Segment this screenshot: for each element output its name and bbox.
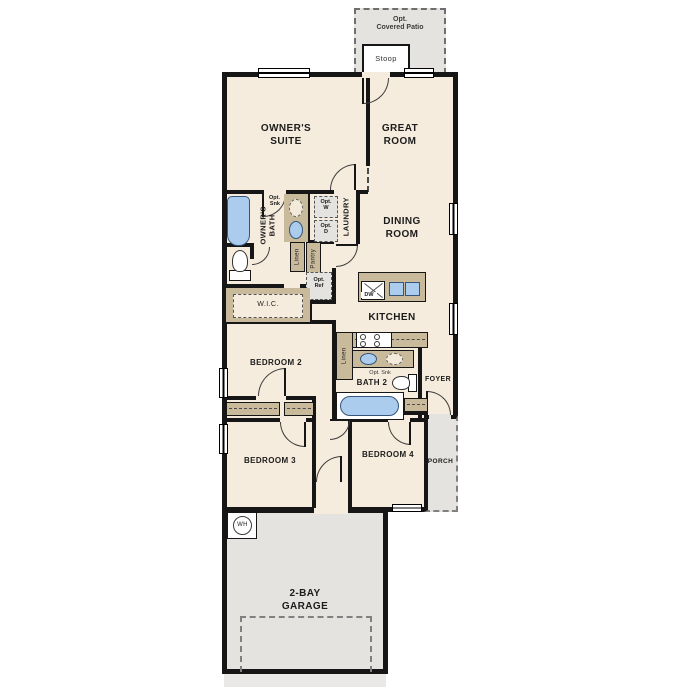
dining-room-label: DINING ROOM	[372, 216, 432, 241]
bedroom3-closet-left	[226, 402, 280, 416]
floor-plan: Opt. Covered Patio Stoop	[0, 0, 687, 687]
opt-w-line1: Opt.	[321, 199, 332, 205]
bedroom4-closet-dashes	[407, 404, 425, 405]
patio-label-line1: Opt.	[393, 16, 407, 23]
window-greatroom-north	[404, 68, 434, 78]
wic-label: W.I.C.	[238, 301, 298, 310]
opt-d-line1: Opt.	[321, 223, 332, 229]
bath2-sink	[360, 353, 377, 365]
closet-right-dashes	[287, 408, 311, 409]
garage-door-opt-outline	[240, 616, 372, 672]
bedroom2-label: BEDROOM 2	[238, 358, 314, 368]
opt-ref-line1: Opt.	[314, 277, 325, 283]
wall-bedroom3-north-right	[306, 418, 316, 422]
opt-covered-patio-label: Opt. Covered Patio	[354, 16, 446, 32]
wall-laundry-east	[356, 190, 360, 244]
kitchen-label: KITCHEN	[362, 312, 422, 325]
burner-3	[360, 341, 366, 347]
opt-w-line2: W	[323, 205, 328, 211]
window-dining-east	[449, 303, 458, 335]
bedroom2-closet	[284, 402, 314, 416]
owners-toilet-bowl	[232, 250, 248, 272]
wall-bedroom4-west	[348, 420, 352, 508]
laundry-label: LAUNDRY	[341, 187, 350, 247]
closet-left-dashes	[229, 408, 277, 409]
wall-suite-south-left	[222, 190, 264, 194]
owners-suite-line2: SUITE	[270, 136, 301, 147]
bath2-opt-sink	[386, 353, 403, 365]
bedroom3-label: BEDROOM 3	[232, 456, 308, 466]
great-room-line1: GREAT	[382, 123, 418, 134]
bedroom2-door-leaf	[284, 368, 286, 396]
wall-ref-east	[332, 268, 336, 304]
owners-bath-line1: OWNER'S	[259, 206, 268, 244]
back-door-leaf	[362, 78, 364, 104]
linen-kitchen-label: Linen	[341, 341, 349, 371]
island-sink-right	[405, 282, 420, 296]
garage-hall-opening	[314, 501, 348, 514]
window-bedroom4-south	[392, 504, 422, 512]
stoop-label: Stoop	[362, 54, 410, 63]
owners-bath-label: OWNER'S BATH	[259, 195, 278, 255]
garage-line2: GARAGE	[282, 601, 328, 612]
dining-line2: ROOM	[386, 229, 419, 240]
opt-washer-label: Opt. W	[314, 199, 338, 212]
porch-label: PORCH	[424, 458, 457, 466]
pantry-label: Pantry	[310, 243, 318, 275]
bath2-opt-sink-label: Opt. Snk	[360, 370, 400, 376]
wall-bedroom4-north-right	[410, 418, 424, 422]
driveway-strip	[224, 674, 386, 687]
garage-label: 2-BAY GARAGE	[262, 588, 348, 613]
opt-d-line2: D	[324, 229, 328, 235]
owners-sink	[289, 221, 303, 239]
bedroom4-closet	[404, 398, 428, 412]
burner-4	[374, 341, 380, 347]
owners-suite-door-leaf	[354, 164, 356, 190]
wall-ref-south	[306, 300, 336, 304]
linen-owners-label: Linen	[294, 242, 302, 272]
burner-2	[374, 334, 380, 340]
bedroom4-label: BEDROOM 4	[352, 450, 424, 460]
window-bedroom2-west	[219, 368, 228, 398]
owners-bath-line2: BATH	[268, 214, 277, 236]
owners-opt-sink	[289, 199, 303, 217]
window-owners-suite-north	[258, 68, 310, 78]
great-room-label: GREAT ROOM	[370, 123, 430, 148]
wall-bedroom3-north-left	[222, 418, 280, 422]
owners-suite-line1: OWNER'S	[261, 123, 311, 134]
window-greatroom-east	[449, 203, 458, 235]
bedroom3-door-leaf	[304, 422, 306, 447]
archway-dashed	[367, 168, 369, 192]
dining-line1: DINING	[383, 216, 420, 227]
owners-suite-label: OWNER'S SUITE	[256, 123, 316, 148]
owners-tub	[227, 196, 250, 246]
bedroom4-door-leaf	[409, 422, 411, 445]
dishwasher-label: DW	[361, 292, 377, 298]
window-bedroom3-west	[219, 424, 228, 454]
burner-1	[360, 334, 366, 340]
foyer-label: FOYER	[420, 376, 456, 385]
island-sink-left	[389, 282, 404, 296]
wall-bath2-closet	[402, 412, 428, 415]
bath2-tub	[340, 396, 399, 416]
bath2-label: BATH 2	[352, 378, 392, 388]
patio-label-line2: Covered Patio	[376, 24, 423, 31]
great-room-line2: ROOM	[384, 136, 417, 147]
garage-line1: 2-BAY	[289, 588, 320, 599]
garage-entry-door-leaf	[340, 456, 342, 482]
opt-dryer-label: Opt. D	[314, 223, 338, 236]
water-heater-label: WH	[233, 522, 252, 530]
opt-ref-line2: Ref	[315, 283, 324, 289]
bath2-toilet-bowl	[392, 376, 410, 390]
